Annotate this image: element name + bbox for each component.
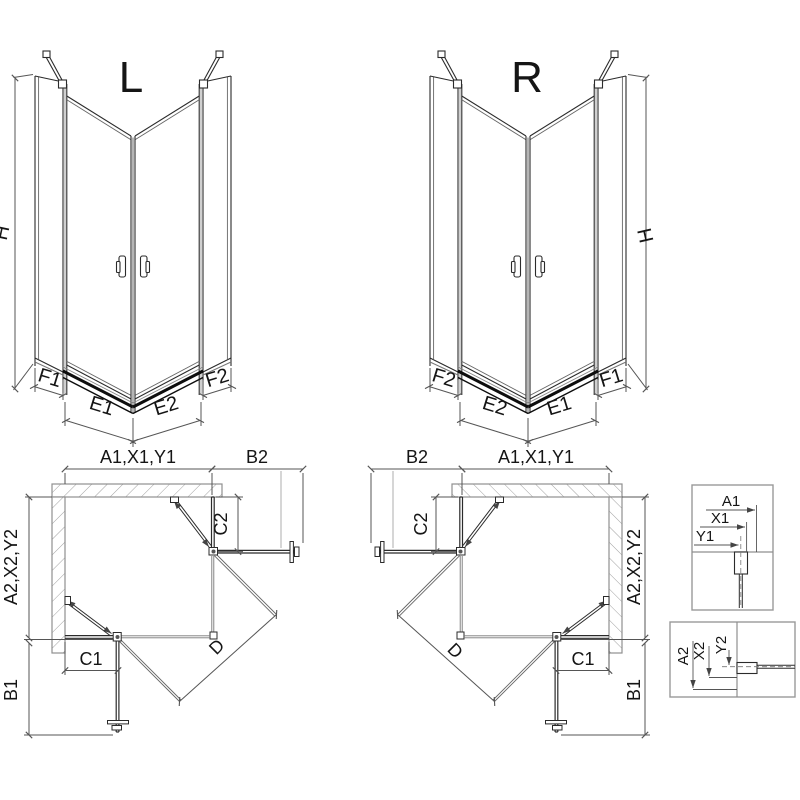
plan-left-fixed-bottom-label: C1 bbox=[79, 649, 102, 669]
detail-view-bottom: A2 X2 Y2 bbox=[670, 622, 795, 697]
front-view-right: R H F2 E2 E1 F1 bbox=[429, 51, 658, 447]
plan-right-door-side-label: B1 bbox=[624, 679, 644, 701]
front-left-height-label: H bbox=[0, 223, 14, 242]
detail-bottom-dim2-label: X2 bbox=[691, 642, 708, 660]
plan-view-right: A1,X1,Y1 B2 A2,X2,Y2 C2 C1 B1 D bbox=[371, 447, 650, 735]
plan-left-diagonal-label: D bbox=[205, 635, 228, 658]
front-right-height-label: H bbox=[634, 226, 659, 245]
technical-drawing-page: L H F1 E1 E2 F2 R H F2 E2 E1 F1 A1,X1,Y1… bbox=[0, 0, 800, 800]
plan-right-fixed-bottom-label: C1 bbox=[571, 649, 594, 669]
plan-left-top-width-label: A1,X1,Y1 bbox=[100, 447, 176, 467]
detail-view-top: A1 X1 Y1 bbox=[692, 485, 773, 610]
detail-bottom-dim3-label: Y2 bbox=[713, 636, 730, 654]
plan-left-door-side-label: B1 bbox=[1, 679, 21, 701]
detail-bottom-dim1-label: A2 bbox=[675, 647, 692, 665]
detail-top-dim2-label: X1 bbox=[711, 510, 729, 527]
detail-top-dim3-label: Y1 bbox=[696, 528, 714, 545]
front-left-title: L bbox=[119, 53, 143, 102]
front-view-left: L H F1 E1 E2 F2 bbox=[0, 51, 232, 447]
plan-left-side-depth-label: A2,X2,Y2 bbox=[1, 529, 21, 605]
plan-right-door-top-label: B2 bbox=[406, 447, 428, 467]
plan-right-side-depth-label: A2,X2,Y2 bbox=[624, 529, 644, 605]
plan-view-left-geometry bbox=[24, 469, 303, 735]
plan-view-left: A1,X1,Y1 B2 A2,X2,Y2 C2 C1 B1 D bbox=[1, 447, 303, 735]
plan-left-door-top-label: B2 bbox=[246, 447, 268, 467]
plan-left-fixed-right-label: C2 bbox=[211, 512, 231, 535]
front-right-title: R bbox=[511, 53, 543, 102]
detail-top-dim1-label: A1 bbox=[722, 493, 740, 510]
plan-view-right-geometry bbox=[371, 469, 650, 735]
plan-right-top-width-label: A1,X1,Y1 bbox=[498, 447, 574, 467]
plan-right-fixed-left-label: C2 bbox=[411, 512, 431, 535]
shower-enclosure-dimension-drawing: L H F1 E1 E2 F2 R H F2 E2 E1 F1 A1,X1,Y1… bbox=[0, 0, 800, 800]
